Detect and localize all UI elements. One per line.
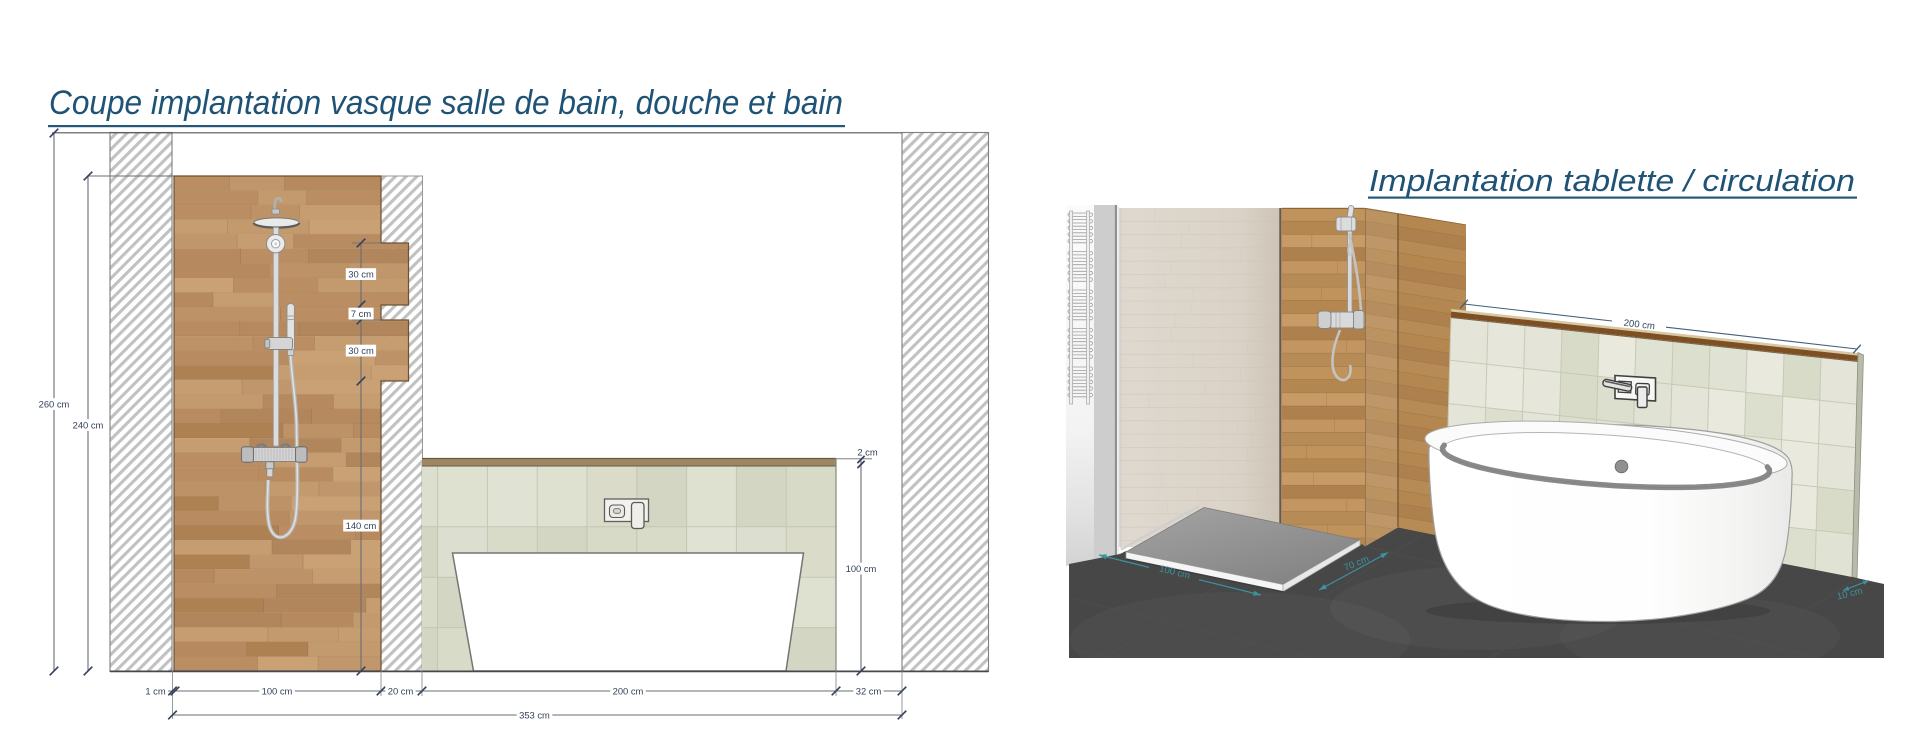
svg-text:140 cm: 140 cm bbox=[346, 520, 377, 531]
svg-text:30 cm: 30 cm bbox=[348, 345, 374, 356]
svg-text:2 cm: 2 cm bbox=[857, 446, 878, 457]
svg-text:240 cm: 240 cm bbox=[73, 419, 104, 430]
svg-text:32 cm: 32 cm bbox=[856, 685, 882, 696]
svg-text:1 cm: 1 cm bbox=[145, 685, 166, 696]
svg-text:20 cm: 20 cm bbox=[388, 685, 414, 696]
svg-text:100 cm: 100 cm bbox=[262, 685, 293, 696]
svg-text:100 cm: 100 cm bbox=[846, 563, 877, 574]
svg-text:7 cm: 7 cm bbox=[351, 308, 372, 319]
svg-text:30 cm: 30 cm bbox=[348, 268, 374, 279]
svg-text:200 cm: 200 cm bbox=[613, 685, 644, 696]
svg-text:353 cm: 353 cm bbox=[519, 709, 550, 720]
svg-text:260 cm: 260 cm bbox=[39, 398, 70, 409]
svg-text:Implantation tablette / circul: Implantation tablette / circulation bbox=[1369, 163, 1855, 198]
svg-text:Coupe implantation vasque sall: Coupe implantation vasque salle de bain,… bbox=[49, 84, 843, 122]
